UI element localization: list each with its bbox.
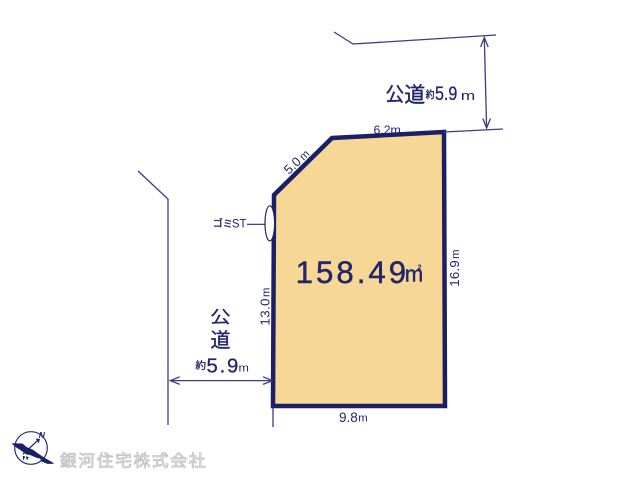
svg-text:5.9: 5.9 bbox=[207, 356, 239, 378]
svg-text:9.8: 9.8 bbox=[339, 410, 358, 425]
svg-text:m: m bbox=[358, 413, 367, 425]
svg-text:m: m bbox=[461, 88, 476, 103]
svg-text:2: 2 bbox=[417, 262, 421, 271]
svg-text:13.0: 13.0 bbox=[258, 298, 273, 325]
svg-text:m: m bbox=[390, 124, 401, 137]
svg-text:m: m bbox=[239, 363, 249, 375]
svg-text:N: N bbox=[39, 430, 46, 440]
svg-text:16.9: 16.9 bbox=[447, 260, 462, 287]
svg-text:158.49: 158.49 bbox=[296, 255, 407, 290]
svg-text:5.9: 5.9 bbox=[435, 83, 457, 105]
svg-text:m: m bbox=[261, 288, 273, 297]
svg-text:ST: ST bbox=[232, 218, 247, 230]
svg-text:m: m bbox=[450, 249, 462, 258]
svg-text:6.2: 6.2 bbox=[374, 123, 391, 137]
